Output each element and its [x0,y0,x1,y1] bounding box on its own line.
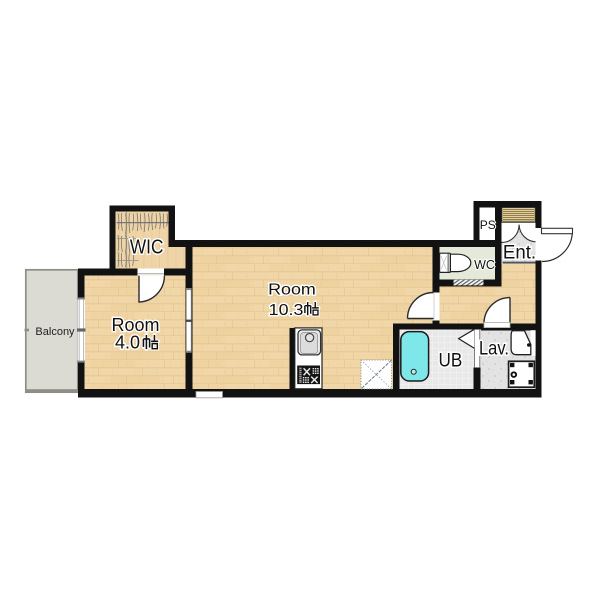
svg-text:Room: Room [268,280,316,298]
svg-text:10.3: 10.3 [269,301,304,319]
svg-text:UB: UB [438,350,462,371]
svg-text:Balcony: Balcony [35,326,75,338]
svg-text:Lav.: Lav. [479,338,509,359]
svg-text:PS: PS [480,218,496,232]
svg-text:WIC: WIC [130,236,163,259]
svg-text:4.0: 4.0 [115,333,140,353]
svg-text:Ent.: Ent. [503,241,536,262]
svg-text:WC: WC [474,258,495,272]
